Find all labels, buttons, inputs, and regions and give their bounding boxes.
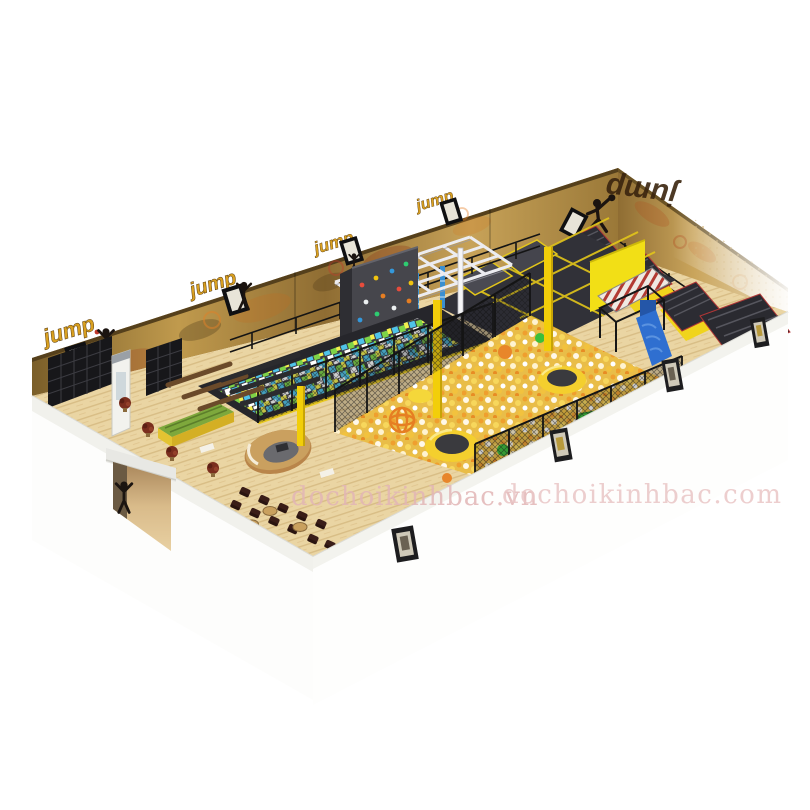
round-trampoline bbox=[425, 430, 479, 462]
safety-pole bbox=[297, 386, 305, 446]
scene-canvas: jump jump jump jump ju bbox=[0, 0, 810, 810]
cafe-table bbox=[263, 507, 277, 516]
vending-machine bbox=[112, 350, 130, 436]
watermark-right: dochoikinhbac.com bbox=[502, 480, 782, 510]
ninja-post bbox=[458, 248, 463, 318]
watermark: dochoikinhbac.vn dochoikinhbac.com bbox=[291, 480, 782, 512]
trampoline-park-render: jump jump jump jump ju bbox=[0, 0, 810, 810]
cafe-table bbox=[293, 523, 307, 532]
round-trampoline bbox=[538, 366, 586, 394]
yellow-dome bbox=[408, 389, 432, 403]
green-ball bbox=[535, 333, 545, 343]
orange-ball bbox=[498, 345, 512, 359]
